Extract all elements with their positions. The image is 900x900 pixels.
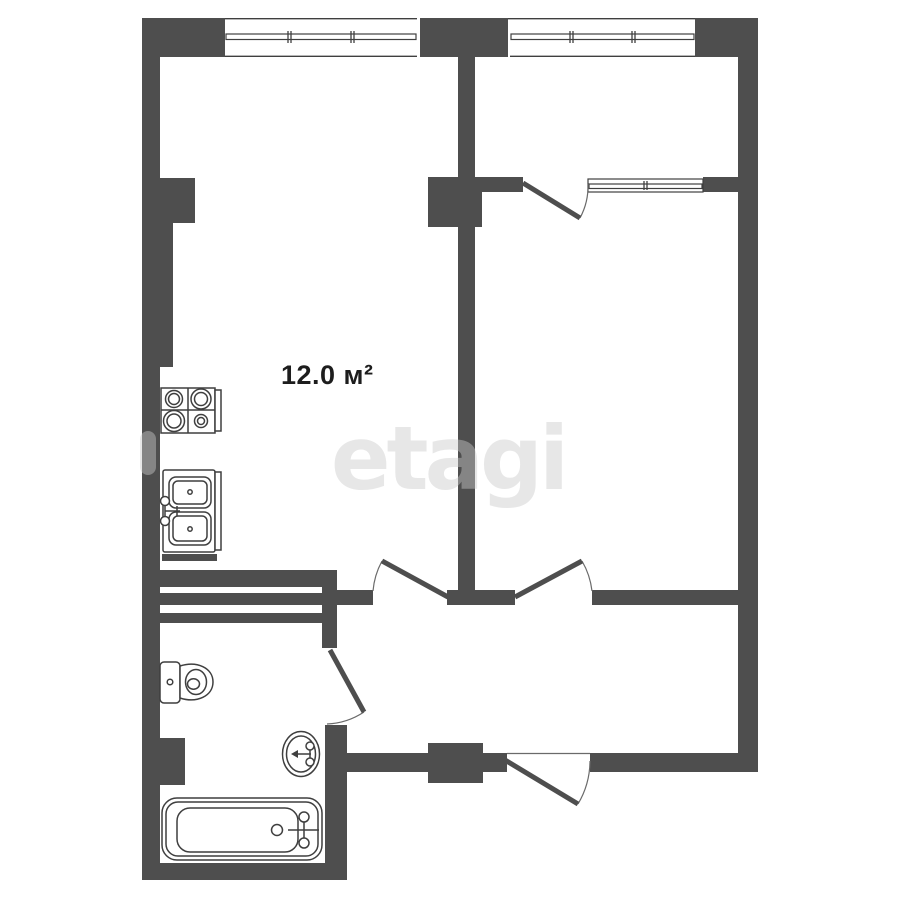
entrance-door	[505, 754, 590, 805]
stove-icon	[161, 388, 221, 433]
wall-right	[738, 18, 758, 772]
floor-plan-canvas: 12.0 м² etagi	[0, 0, 900, 900]
bathroom-door	[327, 650, 364, 724]
toilet-icon	[160, 662, 213, 703]
wall-divider-upper	[458, 55, 475, 179]
wall-left-thick	[142, 223, 173, 367]
wall-divider-block	[428, 177, 482, 227]
shaft-bar-1	[142, 570, 333, 587]
balcony-door	[523, 183, 588, 218]
wall-top-left-block	[142, 18, 225, 57]
wall-bath-bottom	[142, 863, 347, 880]
wall-entrance-pier	[428, 743, 483, 783]
floor-plan: 12.0 м² etagi	[0, 0, 900, 900]
washbasin-icon	[283, 732, 320, 777]
wall-left-pilaster	[142, 178, 195, 223]
shaft-bar-2	[142, 593, 333, 605]
shaft-bar-3	[142, 613, 333, 623]
wall-bath-east	[325, 725, 347, 880]
wall-balcony-stub-left	[475, 177, 523, 192]
wall-hall-bottom-right	[590, 753, 758, 772]
bedroom-door	[515, 561, 592, 597]
watermark-fragment	[140, 431, 156, 475]
wall-top-mid-block	[420, 18, 508, 57]
balcony-bedroom-window	[588, 179, 703, 192]
wall-bath-pilaster	[142, 738, 185, 785]
counter-edge	[162, 554, 217, 561]
watermark-text: etagi	[331, 407, 565, 510]
kitchen-sink-icon	[161, 470, 222, 552]
shaft-right-connector	[322, 570, 337, 648]
wall-hall-north-center	[447, 590, 515, 605]
wall-balcony-stub-right	[703, 177, 738, 192]
balcony-window	[508, 19, 695, 57]
wall-bedroom-south	[592, 590, 738, 605]
kitchen-window	[225, 19, 417, 57]
room-area-label: 12.0 м²	[281, 360, 374, 390]
bathtub-icon	[162, 798, 322, 860]
kitchen-door	[373, 561, 448, 597]
